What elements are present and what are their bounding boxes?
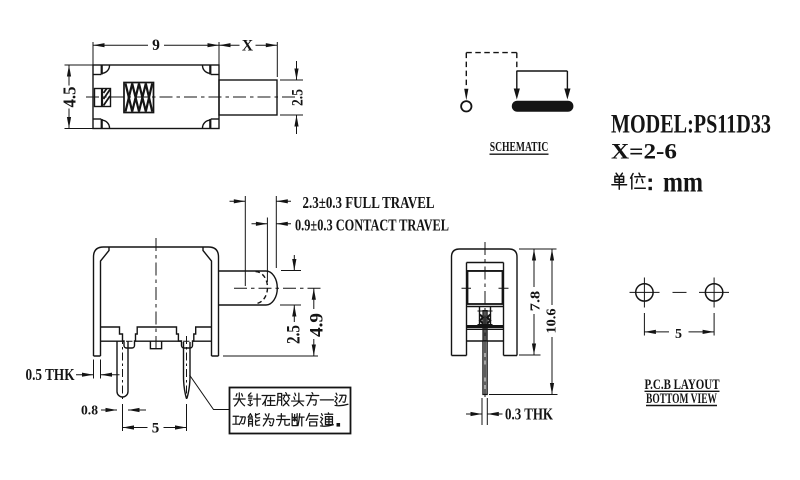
svg-text:2.5: 2.5 — [289, 89, 306, 106]
svg-text:X: X — [242, 37, 254, 54]
svg-text:2.5: 2.5 — [284, 325, 305, 344]
svg-text:5: 5 — [152, 421, 160, 437]
svg-text:0.3 THK: 0.3 THK — [505, 405, 553, 424]
svg-text:4.9: 4.9 — [307, 313, 328, 337]
svg-text:0.9±0.3 CONTACT TRAVEL: 0.9±0.3 CONTACT TRAVEL — [295, 215, 449, 234]
svg-text:4.5: 4.5 — [60, 86, 80, 107]
svg-text:MODEL:PS11D33: MODEL:PS11D33 — [611, 108, 771, 138]
svg-text:7.8: 7.8 — [528, 291, 543, 312]
svg-text:10.6: 10.6 — [544, 309, 559, 334]
svg-text:0.5 THK: 0.5 THK — [26, 365, 75, 384]
svg-text:0.8: 0.8 — [81, 404, 98, 419]
svg-text:mm: mm — [663, 165, 703, 198]
svg-text:5: 5 — [675, 327, 682, 342]
svg-text:X=2-6: X=2-6 — [611, 139, 677, 164]
svg-text:SCHEMATIC: SCHEMATIC — [490, 139, 549, 154]
svg-text:9: 9 — [152, 37, 160, 54]
svg-text:2.3±0.3 FULL TRAVEL: 2.3±0.3 FULL TRAVEL — [303, 193, 435, 212]
svg-text:BOTTOM VIEW: BOTTOM VIEW — [646, 391, 717, 407]
